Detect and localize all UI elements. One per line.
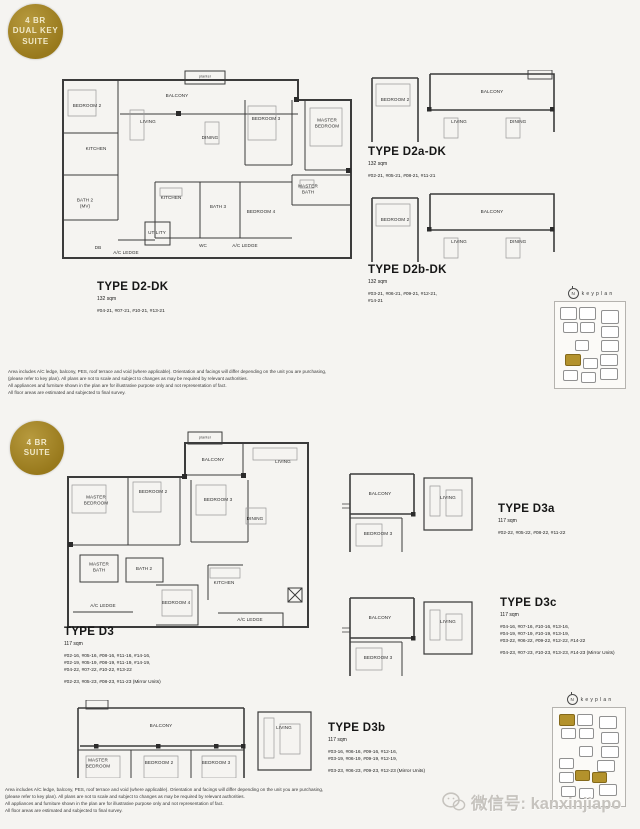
plan-area: 117 sqm	[64, 641, 161, 647]
keyplan-unit-block	[579, 307, 596, 320]
room-label-wc: WC	[199, 243, 207, 249]
room-label-planter: planter	[199, 75, 211, 80]
plan-units: #03-16, #06-16, #09-16, #12-16,	[328, 749, 425, 756]
keyplan-unit-block	[601, 746, 619, 758]
room-label-living: LIVING	[140, 119, 156, 125]
keyplan-unit-block	[597, 760, 615, 772]
keyplan-unit-block	[600, 354, 618, 366]
floorplan-walls	[60, 70, 356, 272]
room-label-bedroom4: BEDROOM 4	[247, 209, 275, 215]
plan-label-d3a: TYPE D3a 117 sqm #02-22, #05-22, #08-22,…	[498, 503, 565, 537]
plan-units: #04-16, #07-16, #10-16, #13-16,	[500, 624, 615, 631]
plan-title: TYPE D2b-DK	[368, 264, 447, 276]
badge-line: 4 BR	[25, 16, 46, 26]
floorplan-walls	[342, 592, 478, 676]
disclaimer-line: Area includes A/C ledge, balcony, PES, r…	[8, 368, 548, 375]
keyplan-unit-block	[561, 728, 576, 739]
plan-area: 117 sqm	[328, 737, 425, 743]
plan-units: #02-22, #05-22, #08-22, #11-22	[498, 530, 565, 537]
room-label-dining: DINING	[510, 239, 527, 245]
keyplan-label: keyplan	[581, 697, 614, 703]
keyplan-unit-block	[581, 372, 596, 383]
disclaimer-line: All floor areas are estimated and subjec…	[8, 389, 548, 396]
floorplan-d2adk: BEDROOM 2 BALCONY LIVING DINING	[368, 70, 564, 144]
plan-units: #03-19, #06-19, #09-19, #12-19,	[328, 756, 425, 763]
room-label-dining: DINING	[247, 516, 264, 522]
room-label-dining: DINING	[510, 119, 527, 125]
keyplan-unit-block	[599, 716, 617, 729]
room-label-db: DB	[95, 245, 102, 251]
keyplan-unit-block	[601, 310, 619, 324]
plan-area: 117 sqm	[500, 612, 615, 618]
north-compass-icon: N	[568, 288, 579, 299]
keyplan-highlighted-unit	[565, 354, 581, 366]
room-label-living: LIVING	[440, 619, 456, 625]
disclaimer-text: Area includes A/C ledge, balcony, PES, r…	[8, 368, 548, 396]
room-label-bedroom3: BEDROOM 3	[204, 497, 232, 503]
badge-4br-dual-key-suite: 4 BR DUAL KEY SUITE	[8, 4, 63, 59]
keyplan-unit-block	[559, 758, 574, 769]
room-label-ac-ledge: A/C LEDGE	[232, 243, 257, 249]
disclaimer-line: (please refer to key plan). All plans ar…	[8, 375, 548, 382]
plan-title: TYPE D2-DK	[97, 281, 168, 293]
keyplan-unit-block	[601, 732, 619, 744]
keyplan-unit-block	[563, 370, 578, 381]
room-label-bedroom3: BEDROOM 3	[364, 531, 392, 537]
room-label-living: LIVING	[275, 459, 291, 465]
keyplan-unit-block	[559, 772, 574, 783]
floorplan-d3a: BALCONY LIVING BEDROOM 3	[342, 468, 478, 552]
room-label-bedroom2: BEDROOM 2	[139, 489, 167, 495]
plan-label-d3c: TYPE D3c 117 sqm #04-16, #07-16, #10-16,…	[500, 597, 615, 657]
room-label-balcony: BALCONY	[150, 723, 173, 729]
keyplan-unit-block	[563, 322, 578, 333]
plan-title: TYPE D3a	[498, 503, 565, 515]
room-label-living: LIVING	[451, 119, 467, 125]
room-label-bedroom2: BEDROOM 2	[145, 760, 173, 766]
badge-line: 4 BR	[27, 438, 48, 448]
wechat-watermark: 微信号: kanxinjiapo	[442, 790, 621, 814]
room-label-bedroom3: BEDROOM 3	[252, 116, 280, 122]
floorplan-d2bdk: BEDROOM 2 BALCONY LIVING DINING	[368, 190, 564, 264]
plan-units: #04-21, #07-21, #10-21, #13-21	[97, 308, 168, 315]
room-label-bath3: BATH 3	[210, 204, 226, 210]
plan-units: #02-21, #05-21, #08-21, #11-21	[368, 173, 446, 180]
room-label-balcony: BALCONY	[369, 615, 392, 621]
floorplan-d3: planter BALCONY LIVING MASTER BEDROOM BE…	[58, 430, 328, 635]
room-label-balcony: BALCONY	[202, 457, 225, 463]
plan-units: #03-21, #06-21, #09-21, #12-21,	[368, 291, 447, 298]
room-label-ac-ledge: A/C LEDGE	[237, 617, 262, 623]
keyplan-highlighted-unit	[592, 772, 607, 783]
plan-label-d2dk: TYPE D2-DK 132 sqm #04-21, #07-21, #10-2…	[97, 281, 168, 315]
room-label-balcony: BALCONY	[166, 93, 189, 99]
room-label-master-bath: MASTER BATH	[296, 183, 320, 194]
room-label-bedroom2: BEDROOM 2	[381, 217, 409, 223]
room-label-ac-ledge: A/C LEDGE	[90, 603, 115, 609]
plan-title: TYPE D2a-DK	[368, 146, 446, 158]
plan-units-mirror: #03-23, #06-23, #09-23, #12-23 (Mirror U…	[328, 768, 425, 775]
keyplan-unit-block	[560, 307, 577, 320]
plan-label-d3: TYPE D3 117 sqm #02-16, #05-16, #08-16, …	[64, 626, 161, 686]
room-label-balcony: BALCONY	[369, 491, 392, 497]
badge-line: SUITE	[24, 448, 51, 458]
plan-units: #14-21	[368, 298, 447, 305]
plan-label-d2adk: TYPE D2a-DK 132 sqm #02-21, #05-21, #08-…	[368, 146, 446, 180]
room-label-planter: planter	[199, 436, 211, 441]
room-label-balcony: BALCONY	[481, 209, 504, 215]
room-label-bedroom2: BEDROOM 2	[73, 103, 101, 109]
room-label-kitchen: KITCHEN	[161, 195, 182, 201]
keyplan-unit-block	[579, 746, 593, 757]
plan-units: #03-22, #06-22, #09-22, #12-22, #14-22	[500, 638, 615, 645]
room-label-kitchen: KITCHEN	[86, 146, 107, 152]
plan-units: #02-16, #05-16, #08-16, #11-16, #14-16,	[64, 653, 161, 660]
room-label-living: LIVING	[451, 239, 467, 245]
keyplan-unit-block	[577, 714, 593, 726]
room-label-bedroom4: BEDROOM 4	[162, 600, 190, 606]
keyplan-unit-block	[575, 340, 589, 351]
wechat-icon	[442, 792, 466, 812]
floorplan-brochure-page: 4 BR DUAL KEY SUITE planter BALCONY BEDR…	[0, 0, 640, 829]
plan-area: 117 sqm	[498, 518, 565, 524]
room-label-master-bedroom: MASTER BEDROOM	[83, 757, 113, 768]
badge-4br-suite: 4 BR SUITE	[10, 421, 64, 475]
plan-title: TYPE D3c	[500, 597, 615, 609]
room-label-master-bath: MASTER BATH	[88, 561, 110, 572]
plan-units: #02-19, #05-19, #08-19, #11-19, #14-19,	[64, 660, 161, 667]
keyplan-unit-block	[601, 340, 619, 352]
floorplan-d2dk: planter BALCONY BEDROOM 2 LIVING DINING …	[60, 70, 356, 272]
plan-units: #04-22, #07-22, #10-22, #13-22	[64, 667, 161, 674]
room-label-bedroom3: BEDROOM 3	[364, 655, 392, 661]
room-label-kitchen: KITCHEN	[214, 580, 235, 586]
keyplan-unit-block	[601, 326, 619, 338]
room-label-bath2: BATH 2	[136, 566, 152, 572]
floorplan-walls	[368, 190, 564, 264]
badge-line: SUITE	[22, 37, 49, 47]
keyplan-unit-block	[583, 358, 598, 369]
room-label-bedroom3: BEDROOM 3	[202, 760, 230, 766]
plan-label-d2bdk: TYPE D2b-DK 132 sqm #03-21, #06-21, #09-…	[368, 264, 447, 305]
plan-units: #04-19, #07-19, #10-19, #13-19,	[500, 631, 615, 638]
keyplan-unit-block	[600, 368, 618, 380]
room-label-bedroom2: BEDROOM 2	[381, 97, 409, 103]
plan-area: 132 sqm	[97, 296, 168, 302]
room-label-living: LIVING	[440, 495, 456, 501]
keyplan-highlighted-unit	[559, 714, 575, 726]
north-compass-icon: N	[567, 694, 578, 705]
plan-label-d3b: TYPE D3b 117 sqm #03-16, #06-16, #09-16,…	[328, 722, 425, 775]
room-label-balcony: BALCONY	[481, 89, 504, 95]
keyplan-highlighted-unit	[575, 770, 590, 781]
disclaimer-line: All appliances and furniture shown in th…	[8, 382, 548, 389]
room-label-dining: DINING	[202, 135, 219, 141]
room-label-bath2: BATH 2 (MV)	[75, 197, 95, 208]
plan-title: TYPE D3b	[328, 722, 425, 734]
watermark-text: 微信号: kanxinjiapo	[471, 790, 621, 814]
room-label-master-bedroom: MASTER BEDROOM	[81, 494, 111, 505]
plan-units-mirror: #04-23, #07-23, #10-23, #13-23, #14-23 (…	[500, 650, 615, 657]
room-label-ac-ledge: A/C LEDGE	[113, 250, 138, 256]
plan-units-mirror: #02-23, #05-23, #08-23, #11-23 (Mirror U…	[64, 679, 161, 686]
plan-area: 132 sqm	[368, 161, 446, 167]
keyplan-map	[554, 301, 626, 389]
keyplan-top: N keyplan	[554, 288, 628, 389]
plan-area: 132 sqm	[368, 279, 447, 285]
floorplan-walls	[342, 468, 478, 552]
plan-title: TYPE D3	[64, 626, 161, 638]
room-label-master-bedroom: MASTER BEDROOM	[312, 117, 342, 128]
keyplan-label: keyplan	[582, 291, 615, 297]
keyplan-unit-block	[580, 322, 595, 333]
floorplan-d3c: BALCONY LIVING BEDROOM 3	[342, 592, 478, 676]
room-label-living: LIVING	[276, 725, 292, 731]
floorplan-d3b: BALCONY LIVING MASTER BEDROOM BEDROOM 2 …	[66, 700, 316, 778]
keyplan-unit-block	[579, 728, 594, 739]
room-label-utility: UTILITY	[148, 230, 166, 236]
floorplan-walls	[368, 70, 564, 144]
badge-line: DUAL KEY	[13, 26, 59, 36]
